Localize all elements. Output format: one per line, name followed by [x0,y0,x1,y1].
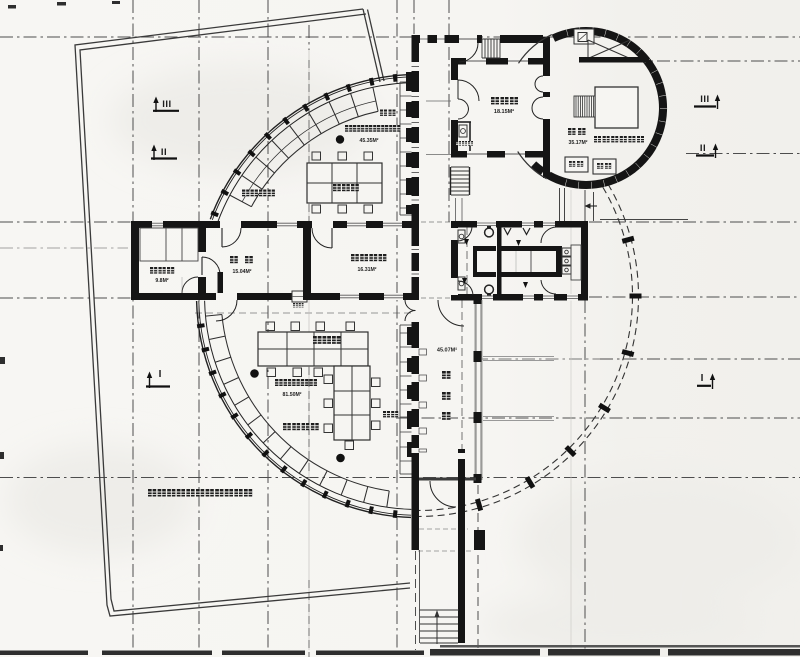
svg-text:II: II [161,147,167,158]
svg-text:III: III [700,94,709,105]
svg-text:II: II [700,143,706,154]
svg-text:15.04M²: 15.04M² [232,269,251,275]
svg-text:I: I [159,369,162,380]
svg-text:81.50M²: 81.50M² [282,392,301,398]
svg-text:I: I [701,373,704,384]
svg-text:18.15M²: 18.15M² [494,108,514,115]
svg-text:9.8M²: 9.8M² [155,278,169,284]
svg-text:III: III [162,99,171,110]
svg-text:16.31M²: 16.31M² [357,267,376,273]
svg-text:45.35M²: 45.35M² [359,138,378,144]
svg-text:45.07M²: 45.07M² [437,347,457,354]
svg-text:35.17M²: 35.17M² [568,140,587,146]
